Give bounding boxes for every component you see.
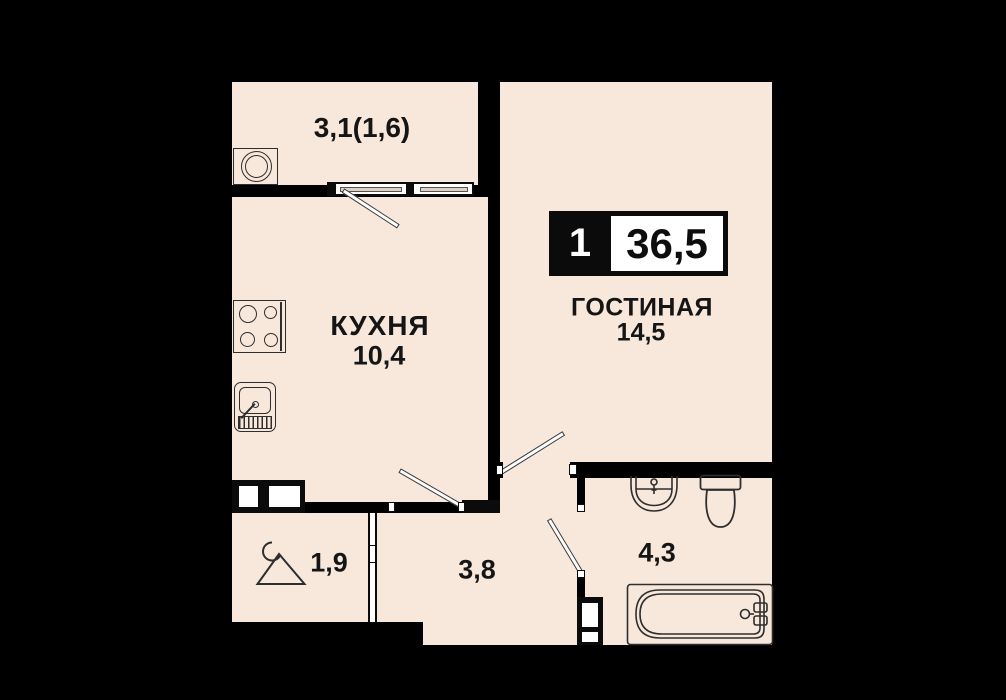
bathtub-icon	[626, 583, 774, 646]
bathroom-door-jamb	[577, 504, 585, 512]
kitchen-door-jamb	[458, 502, 465, 512]
balcony-window-icon	[334, 182, 474, 196]
hallway-area-label: 3,8	[458, 557, 496, 584]
balcony-area-label: 3,1(1,6)	[314, 114, 411, 142]
hanger-icon	[254, 534, 308, 588]
washbasin-icon	[628, 475, 680, 515]
floor-plan: 1 36,5 3,1(1,6) КУХНЯ 10,4 ГОСТИНАЯ 14,5…	[0, 0, 1006, 700]
living-door-jamb	[496, 465, 503, 475]
hallway-lower-floor	[423, 622, 577, 645]
apartment-summary-badge: 1 36,5	[549, 211, 728, 276]
living-door-jamb	[569, 464, 577, 475]
rooms-count: 1	[549, 211, 611, 276]
wardrobe-area-label: 1,9	[310, 550, 348, 577]
bathroom-door-jamb	[577, 570, 585, 578]
kitchen-bottom-wall	[462, 500, 500, 513]
kitchen-area-label: 10,4	[353, 343, 406, 370]
kitchen-door-jamb	[388, 502, 395, 512]
sliding-door-icon	[368, 513, 377, 622]
living-name-label: ГОСТИНАЯ	[571, 296, 713, 321]
total-area: 36,5	[611, 216, 723, 271]
vent-shaft-kitchen-icon	[232, 480, 305, 513]
bathroom-area-label: 4,3	[638, 540, 676, 567]
kitchen-name-label: КУХНЯ	[330, 312, 429, 340]
toilet-icon	[699, 474, 743, 532]
living-area-label: 14,5	[617, 321, 666, 346]
window-left-jamb	[327, 182, 334, 196]
vent-shaft-bathroom-icon	[577, 597, 603, 645]
hallway-upper-floor	[500, 478, 577, 513]
